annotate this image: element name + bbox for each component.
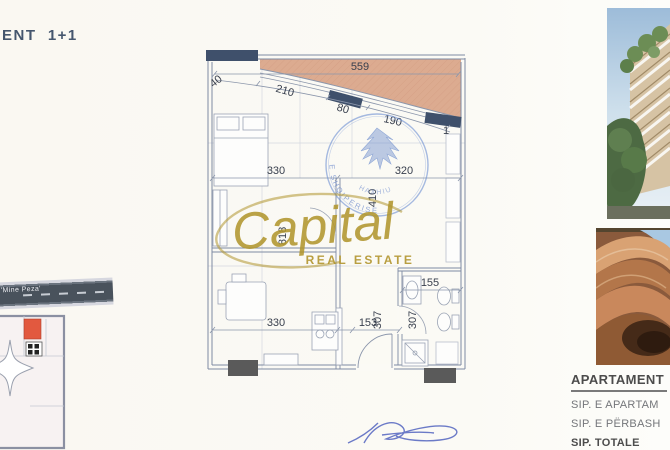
dim-330-bottom: 330 [267,317,285,329]
summary-row-apartment-area: SIP. E APARTAM [571,399,670,411]
apartment-summary: APARTAMENT SIP. E APARTAM SIP. E PËRBASH… [571,372,670,449]
dim-1: 1 [443,125,449,137]
eagle-emblem-icon [361,128,399,169]
signature-icon [338,413,468,449]
watermark-tagline: REAL ESTATE [306,253,415,267]
street-road-band: 'Mine Peza' [0,277,114,309]
elevator-core-icon [26,342,42,356]
page-title: ENT 1+1 [2,27,78,44]
summary-heading: APARTAMENT [571,372,667,392]
dim-559: 559 [351,61,369,73]
key-plan [0,306,100,450]
highlighted-unit [24,319,41,339]
entry-door [356,334,394,371]
photo-building-render [604,8,670,219]
dim-330-top: 330 [267,165,285,177]
dim-307-bath: 307 [407,311,419,329]
dim-307-hall: 307 [372,311,384,329]
watermark-brand: Capital [230,192,397,261]
summary-row-total-area: SIP. TOTALE [571,437,670,449]
dim-210: 210 [274,83,295,100]
photo-curved-facade [596,228,670,365]
scanned-listing-page: ENT 1+1 [0,0,670,450]
summary-row-shared-area: SIP. E PËRBASH [571,418,670,430]
dim-40: 40 [208,73,225,90]
capital-watermark: Capital REAL ESTATE [192,182,432,282]
